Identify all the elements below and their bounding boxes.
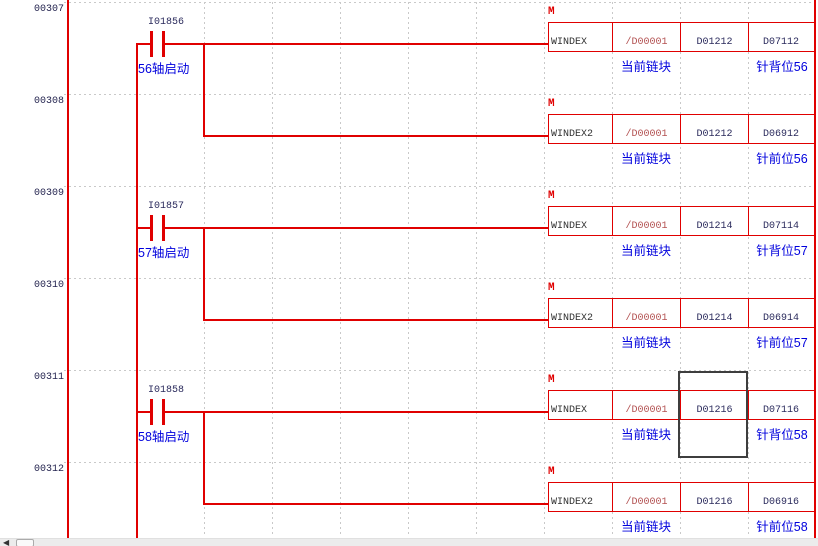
instruction-block[interactable]: WINDEX2 /D00001 D01214 D06914 xyxy=(548,298,815,328)
rung-number[interactable]: 00312 xyxy=(26,464,64,475)
operand-cell[interactable]: D06914 xyxy=(748,299,813,327)
instruction-block[interactable]: WINDEX2 /D00001 D01212 D06912 xyxy=(548,114,815,144)
operand-comment: 针背位58 xyxy=(748,424,816,443)
rung-number[interactable]: 00311 xyxy=(26,372,64,383)
instruction-name[interactable]: WINDEX xyxy=(549,207,612,235)
instruction-name[interactable]: WINDEX2 xyxy=(549,115,612,143)
scrollbar-thumb[interactable] xyxy=(16,539,34,546)
grid-line-vertical xyxy=(340,2,341,537)
wire xyxy=(137,411,151,413)
branch-wire xyxy=(203,411,205,505)
selection-cursor xyxy=(678,371,748,458)
wire xyxy=(137,227,151,229)
grid-line-vertical xyxy=(476,2,477,537)
grid-line-horizontal xyxy=(64,94,818,95)
operand-cell[interactable]: D01214 xyxy=(680,207,748,235)
block-marker: M xyxy=(548,98,555,110)
operand-comment: 当前链块 xyxy=(612,332,680,351)
instruction-block[interactable]: WINDEX /D00001 D01214 D07114 xyxy=(548,206,815,236)
operand-cell[interactable]: D07112 xyxy=(748,23,813,51)
contact-left-bar[interactable] xyxy=(150,215,153,241)
operand-cell[interactable]: D07114 xyxy=(748,207,813,235)
contact-name: I01858 xyxy=(148,385,184,396)
contact-comment: 57轴启动 xyxy=(138,242,189,261)
instruction-block[interactable]: WINDEX2 /D00001 D01216 D06916 xyxy=(548,482,815,512)
operand-comment: 当前链块 xyxy=(612,424,680,443)
grid-line-horizontal xyxy=(64,186,818,187)
instruction-block[interactable]: WINDEX /D00001 D01212 D07112 xyxy=(548,22,815,52)
rung-number[interactable]: 00307 xyxy=(26,4,64,15)
operand-cell[interactable]: /D00001 xyxy=(612,391,680,419)
operand-comment: 针背位57 xyxy=(748,240,816,259)
grid-line-vertical xyxy=(544,2,545,537)
contact-comment: 58轴启动 xyxy=(138,426,189,445)
operand-comment: 针背位56 xyxy=(748,56,816,75)
operand-cell[interactable]: D07116 xyxy=(748,391,813,419)
branch-wire xyxy=(203,43,205,137)
contact-right-bar[interactable] xyxy=(162,31,165,57)
power-rail-right xyxy=(814,0,816,538)
operand-comment: 针前位58 xyxy=(748,516,816,535)
operand-comment: 当前链块 xyxy=(612,56,680,75)
grid-line-horizontal xyxy=(64,462,818,463)
grid-line-vertical xyxy=(272,2,273,537)
wire xyxy=(165,43,549,45)
grid-line-horizontal xyxy=(64,278,818,279)
rung-number[interactable]: 00308 xyxy=(26,96,64,107)
block-marker: M xyxy=(548,6,555,18)
block-marker: M xyxy=(548,190,555,202)
grid-line-vertical xyxy=(612,2,613,537)
scroll-left-icon[interactable]: ◀ xyxy=(3,538,9,546)
grid-line-horizontal xyxy=(64,2,818,3)
horizontal-scrollbar[interactable] xyxy=(0,538,818,546)
wire xyxy=(204,319,549,321)
operand-cell[interactable]: /D00001 xyxy=(612,483,680,511)
contact-name: I01857 xyxy=(148,201,184,212)
instruction-name[interactable]: WINDEX2 xyxy=(549,483,612,511)
operand-comment: 当前链块 xyxy=(612,516,680,535)
operand-cell[interactable]: D01212 xyxy=(680,115,748,143)
operand-cell[interactable]: D01216 xyxy=(680,483,748,511)
operand-cell[interactable]: /D00001 xyxy=(612,299,680,327)
operand-cell[interactable]: D06912 xyxy=(748,115,813,143)
block-marker: M xyxy=(548,374,555,386)
rung-number[interactable]: 00310 xyxy=(26,280,64,291)
rung-number[interactable]: 00309 xyxy=(26,188,64,199)
operand-cell[interactable]: D01214 xyxy=(680,299,748,327)
wire xyxy=(165,411,549,413)
contact-bus xyxy=(136,43,138,538)
ladder-editor-canvas: 00307 I01856 56轴启动 M WINDEX /D00001 D012… xyxy=(0,0,818,546)
instruction-name[interactable]: WINDEX xyxy=(549,391,612,419)
contact-left-bar[interactable] xyxy=(150,31,153,57)
wire xyxy=(204,135,549,137)
power-rail-left xyxy=(67,0,69,538)
operand-comment: 当前链块 xyxy=(612,240,680,259)
operand-cell[interactable]: D01212 xyxy=(680,23,748,51)
operand-comment: 针前位57 xyxy=(748,332,816,351)
instruction-name[interactable]: WINDEX2 xyxy=(549,299,612,327)
wire xyxy=(137,43,151,45)
contact-name: I01856 xyxy=(148,17,184,28)
grid-line-vertical xyxy=(408,2,409,537)
branch-wire xyxy=(203,227,205,321)
wire xyxy=(165,227,549,229)
operand-cell[interactable]: /D00001 xyxy=(612,207,680,235)
contact-comment: 56轴启动 xyxy=(138,58,189,77)
operand-cell[interactable]: /D00001 xyxy=(612,23,680,51)
operand-comment: 当前链块 xyxy=(612,148,680,167)
contact-left-bar[interactable] xyxy=(150,399,153,425)
contact-right-bar[interactable] xyxy=(162,399,165,425)
block-marker: M xyxy=(548,282,555,294)
contact-right-bar[interactable] xyxy=(162,215,165,241)
operand-cell[interactable]: D06916 xyxy=(748,483,813,511)
instruction-name[interactable]: WINDEX xyxy=(549,23,612,51)
grid-line-vertical xyxy=(748,2,749,537)
operand-cell[interactable]: /D00001 xyxy=(612,115,680,143)
block-marker: M xyxy=(548,466,555,478)
wire xyxy=(204,503,549,505)
operand-comment: 针前位56 xyxy=(748,148,816,167)
